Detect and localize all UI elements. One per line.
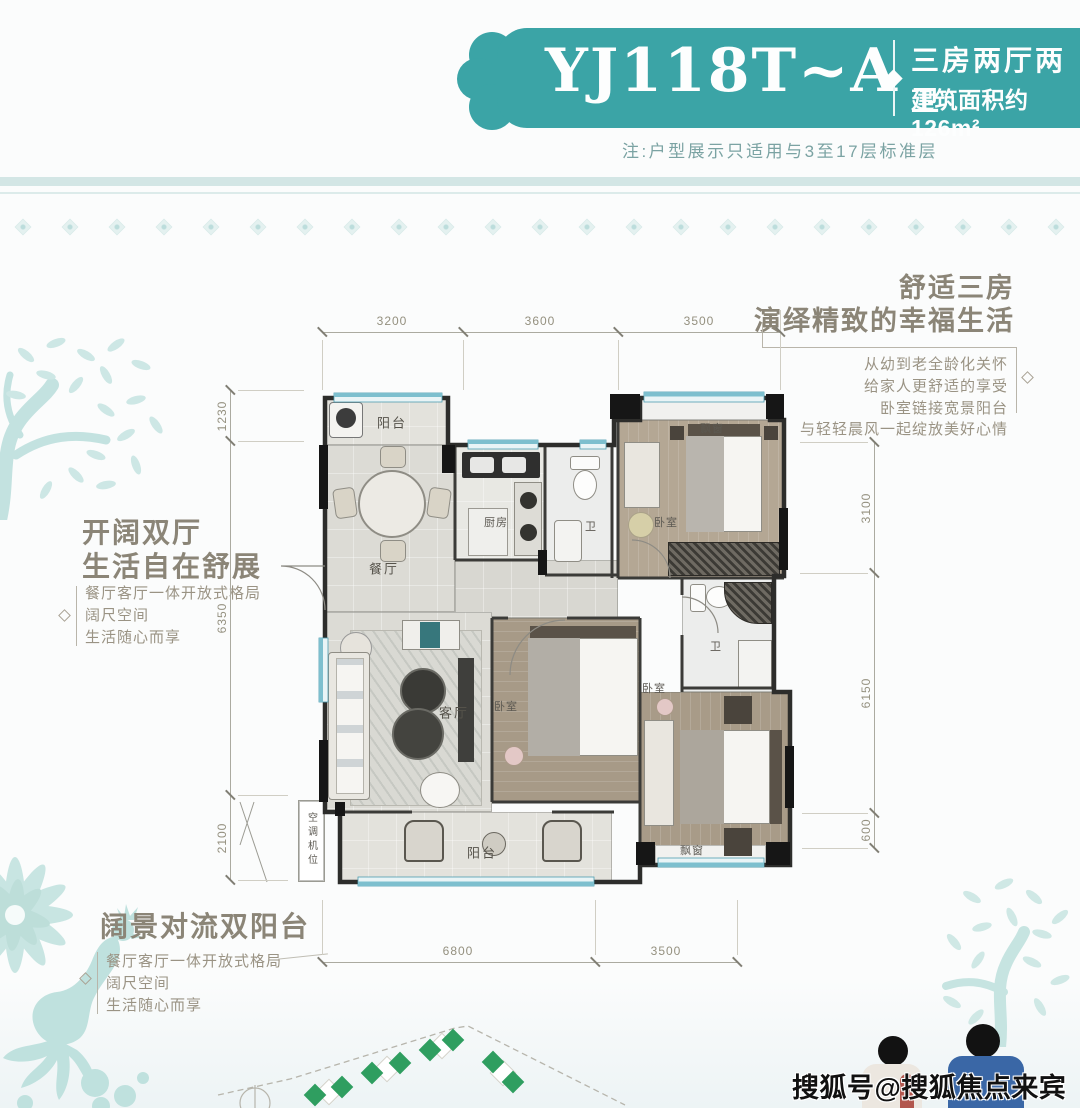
dim-top-3: 3500 — [684, 314, 715, 328]
extension-line — [802, 848, 868, 849]
highlight-right-heading1: 舒适三房 — [690, 272, 1015, 305]
extension-line — [737, 900, 738, 955]
dim-bottom-2: 3500 — [651, 944, 682, 958]
dim-right-1: 3100 — [859, 493, 873, 524]
built-area-text: 建筑面积约126m² — [911, 81, 1079, 142]
floor-applicability-note: 注:户型展示只适用与3至17层标准层 — [480, 137, 1080, 162]
room-label-balcony-bottom: 阳台 — [467, 843, 497, 862]
dim-right-2: 6150 — [859, 678, 873, 709]
divider-line — [0, 192, 1080, 194]
diamond-ornament-icon — [860, 219, 877, 236]
highlight-bottom-line3: 生活随心而享 — [106, 995, 282, 1017]
extension-line — [238, 795, 288, 796]
dim-top-2: 3600 — [525, 314, 556, 328]
diamond-ornament-icon — [531, 219, 548, 236]
highlight-bottom-body: 餐厅客厅一体开放式格局 阔尺空间 生活随心而享 — [106, 951, 282, 1016]
room-label-balcony-top: 阳台 — [377, 413, 407, 432]
diamond-ornament-icon — [907, 219, 924, 236]
diamond-ornament-icon — [297, 219, 314, 236]
diamond-ornament-icon — [954, 219, 971, 236]
extension-line — [238, 390, 304, 391]
right-block-bracket-v — [1016, 347, 1017, 413]
divider-band — [0, 177, 1080, 186]
extension-line — [238, 441, 304, 442]
room-label-bedroom-bottom: 卧室 — [642, 680, 666, 696]
room-label-bay-bottom: 飘窗 — [680, 842, 704, 858]
extension-line — [463, 340, 464, 390]
extension-line — [238, 880, 288, 881]
diamond-ornament-icon — [766, 219, 783, 236]
floorplan-page: YJ118T~A 三房两厅两卫 建筑面积约126m² 注:户型展示只适用与3至1… — [0, 0, 1080, 1108]
tree-bottom-right-decoration — [912, 862, 1080, 1047]
room-label-ac-unit: 空调机位 — [304, 812, 319, 868]
dim-bottom-1: 6800 — [443, 944, 474, 958]
right-block-bracket-stub — [762, 322, 763, 348]
dim-line-right — [874, 442, 875, 848]
dim-line-left — [230, 390, 231, 880]
person-silhouette-icon — [878, 1036, 908, 1066]
diamond-ornament-icon — [485, 219, 502, 236]
extension-line — [802, 813, 868, 814]
person-silhouette-icon — [966, 1024, 1000, 1058]
diamond-ornament-icon — [813, 219, 830, 236]
watermark-text: 搜狐号@搜狐焦点来宾站 — [792, 1066, 1080, 1108]
room-label-kitchen: 厨房 — [484, 514, 508, 530]
diamond-ornament-icon — [15, 219, 32, 236]
extension-line — [322, 900, 323, 955]
dim-left-2: 6350 — [215, 603, 229, 634]
right-block-diamond-icon — [1021, 371, 1034, 384]
room-label-bay-top: 飘窗 — [700, 420, 724, 436]
diamond-ornament-icon — [719, 219, 736, 236]
dim-top-1: 3200 — [377, 314, 408, 328]
room-label-bath-right: 卫 — [710, 638, 722, 654]
room-label-living: 客厅 — [439, 703, 469, 722]
room-label-bedroom-mid: 卧室 — [494, 698, 518, 714]
diamond-ornament-icon — [438, 219, 455, 236]
left-block-diamond-icon — [58, 609, 71, 622]
extension-line — [618, 340, 619, 390]
dim-right-3: 600 — [859, 818, 873, 841]
dim-left-3: 2100 — [215, 823, 229, 854]
extension-line — [322, 340, 323, 390]
diamond-ornament-icon — [344, 219, 361, 236]
room-label-bath-top: 卫 — [585, 518, 597, 534]
highlight-right-block: 舒适三房 演绎精致的幸福生活 — [690, 272, 1015, 338]
room-label-dining: 餐厅 — [369, 559, 399, 578]
diamond-ornament-icon — [672, 219, 689, 236]
highlight-bottom-line1: 餐厅客厅一体开放式格局 — [106, 951, 282, 973]
plan-walls — [232, 370, 852, 930]
extension-line — [800, 442, 868, 443]
unit-type-title: YJ118T~A — [545, 36, 899, 106]
diamond-ornament-icon — [109, 219, 126, 236]
diamond-ornament-icon — [625, 219, 642, 236]
site-plan-sketch — [200, 1015, 640, 1108]
extension-line — [800, 573, 868, 574]
dim-line-top — [322, 332, 780, 333]
diamond-ornament-icon — [391, 219, 408, 236]
diamond-ornament-icon — [156, 219, 173, 236]
title-banner: YJ118T~A 三房两厅两卫 建筑面积约126m² — [487, 28, 1080, 128]
diamond-ornament-icon — [250, 219, 267, 236]
highlight-bottom-line2: 阔尺空间 — [106, 973, 282, 995]
diamond-ornament-icon — [1001, 219, 1018, 236]
tree-top-left-decoration — [0, 315, 196, 520]
extension-line — [780, 310, 781, 390]
room-label-bedroom-right: 卧室 — [654, 514, 678, 530]
extension-line — [595, 900, 596, 955]
left-block-bracket-v — [76, 586, 77, 646]
diamond-ornament-icon — [62, 219, 79, 236]
diamond-ornament-row — [0, 212, 1080, 242]
diamond-ornament-icon — [203, 219, 220, 236]
floor-plan: 阳台 餐厅 厨房 卫 飘窗 卧室 客厅 卧室 卫 卧室 飘窗 阳台 空调机位 — [292, 390, 792, 890]
diamond-ornament-icon — [1048, 219, 1065, 236]
bottom-block-bracket-v — [97, 952, 98, 1014]
right-block-bracket-h — [762, 347, 1016, 348]
diamond-ornament-icon — [578, 219, 595, 236]
dim-left-1: 1230 — [215, 401, 229, 432]
dim-line-bottom — [322, 962, 737, 963]
